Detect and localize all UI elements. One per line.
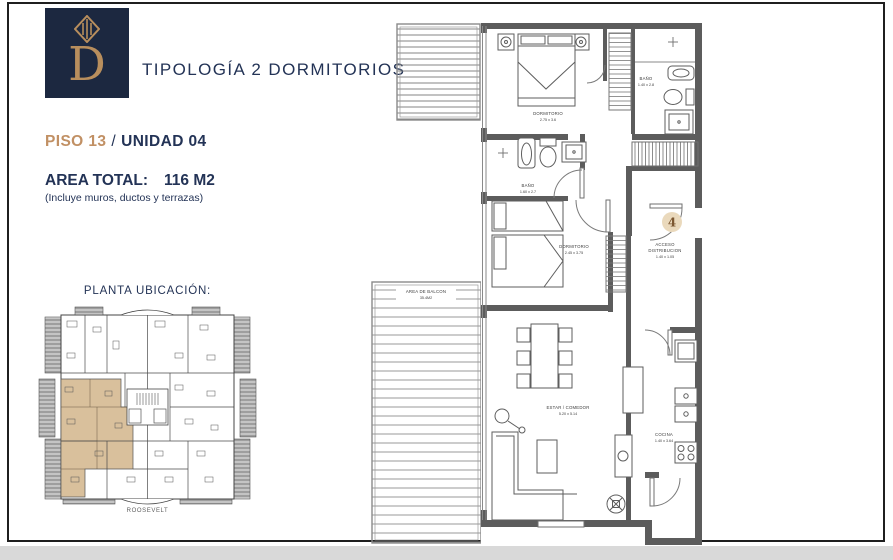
floor-label: PISO 13 [45, 133, 106, 150]
area-total-line: AREA TOTAL:116 M2 [45, 172, 215, 190]
bedroom1-dims: 2.75 x 3.6 [540, 118, 556, 122]
unit-floorplan-svg: AREA DE BALCON 35.4M2 [368, 10, 703, 550]
kitchen-peninsula [623, 367, 643, 413]
stove [675, 442, 697, 463]
living-label: ESTAR / COMEDOR [546, 405, 589, 410]
company-logo: D [45, 8, 129, 98]
balcony-label: AREA DE BALCON [406, 289, 446, 294]
bathroom1-dims: 1.40 x 2.8 [638, 83, 654, 87]
unit-label: UNIDAD 04 [121, 133, 206, 150]
entry-dims: 1.40 x 1.05 [656, 255, 674, 259]
balcony-threshold [538, 521, 584, 527]
entry-label-2: DISTRIBUCION [648, 248, 681, 253]
duct-shaft [632, 142, 698, 166]
living-dims: 5.20 x 5.14 [559, 412, 577, 416]
upper-terrace [397, 24, 480, 120]
bedroom2-label: DORMITORIO [559, 244, 589, 249]
location-plan-svg [35, 301, 260, 506]
building-name: ROOSEVELT [35, 508, 260, 514]
closet-ladder-1 [609, 33, 631, 110]
bathroom2-dims: 1.60 x 2.7 [520, 190, 536, 194]
bedroom1-label: DORMITORIO [533, 111, 563, 116]
area-value: 116 M2 [164, 172, 215, 189]
typology-title: TIPOLOGÍA 2 DORMITORIOS [142, 60, 405, 80]
bathroom1-label: BAÑO [640, 76, 653, 81]
entry-label-1: ACCESO [655, 242, 675, 247]
balcony-dims: 35.4M2 [420, 296, 432, 300]
bathroom2-label: BAÑO [522, 183, 535, 188]
floor-unit-line: PISO 13/UNIDAD 04 [45, 133, 207, 151]
area-label: AREA TOTAL: [45, 172, 148, 189]
closet-ladder-2 [606, 236, 626, 292]
balcony-area: AREA DE BALCON 35.4M2 [372, 282, 481, 543]
kitchen-label: COCINA [655, 432, 673, 437]
unit-number: 4 [668, 216, 676, 230]
kitchen-dims: 1.40 x 3.64 [655, 439, 673, 443]
entry-door-leaf [650, 204, 682, 208]
location-plan-title: PLANTA UBICACIÓN: [35, 285, 260, 297]
logo-letter: D [68, 43, 106, 87]
page-bottom-strip [0, 546, 893, 560]
separator: / [111, 133, 116, 150]
area-note: (Incluye muros, ductos y terrazas) [45, 192, 203, 204]
floorplan-sheet: D TIPOLOGÍA 2 DORMITORIOS PISO 13/UNIDAD… [0, 0, 893, 560]
building-core [127, 389, 168, 425]
bedroom2-dims: 2.45 x 3.75 [565, 251, 583, 255]
